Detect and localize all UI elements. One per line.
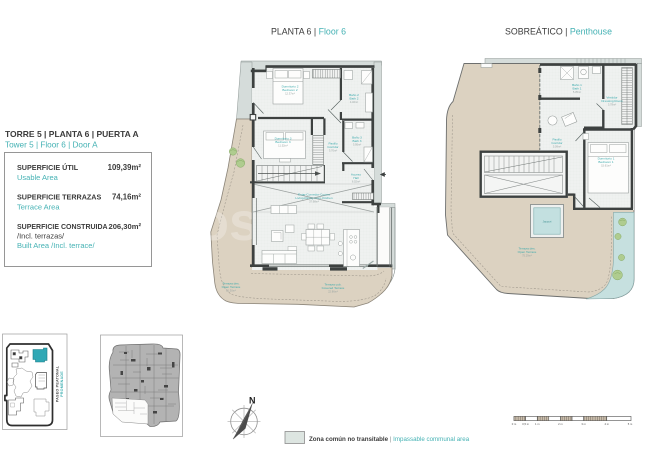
svg-text:/Incl. terrazas/: /Incl. terrazas/ [17,232,65,241]
svg-text:4.32m²: 4.32m² [350,100,358,104]
svg-text:Bedroom 3: Bedroom 3 [275,140,290,144]
svg-text:5.35m²: 5.35m² [573,90,581,94]
svg-text:0,5 m: 0,5 m [522,422,529,426]
svg-text:22.86m²: 22.86m² [328,290,338,294]
svg-text:Bedroom 2: Bedroom 2 [282,88,297,92]
svg-text:SUPERFICIE TERRAZAS: SUPERFICIE TERRAZAS [17,193,101,202]
svg-text:Living-Dining room-Kitchen: Living-Dining room-Kitchen [295,196,332,200]
svg-text:15.61m²: 15.61m² [601,164,611,168]
svg-text:PLANTA 6 | Floor 6: PLANTA 6 | Floor 6 [271,27,346,37]
svg-text:Bedroom 1: Bedroom 1 [598,160,613,164]
svg-text:Bath 3: Bath 3 [353,139,362,143]
svg-text:0 m: 0 m [512,422,517,426]
svg-text:109,39m²: 109,39m² [108,163,142,172]
svg-text:4 m: 4 m [605,422,610,426]
svg-text:1 m: 1 m [535,422,540,426]
svg-text:3.78m²: 3.78m² [608,103,616,107]
svg-text:Zona común no transitable | Im: Zona común no transitable | Impassable c… [309,436,470,443]
svg-text:Bath 2: Bath 2 [350,97,359,101]
svg-text:6.02m²: 6.02m² [352,180,360,184]
svg-text:SOBREÁTICO | Penthouse: SOBREÁTICO | Penthouse [505,27,612,37]
svg-text:Usable Area: Usable Area [17,173,59,182]
svg-text:12.37m²: 12.37m² [285,92,295,96]
svg-text:5 m: 5 m [628,422,633,426]
svg-text:Corridor: Corridor [551,141,562,145]
svg-text:Covered Terrace: Covered Terrace [322,286,345,290]
svg-text:Tower 5 | Floor 6 | Door A: Tower 5 | Floor 6 | Door A [5,141,98,150]
svg-text:TORRE 5 | PLANTA 6 | PUERTA A: TORRE 5 | PLANTA 6 | PUERTA A [5,129,139,139]
svg-text:Open Terrace: Open Terrace [518,250,537,254]
svg-text:11.52m²: 11.52m² [278,144,288,148]
svg-text:51.30m²: 51.30m² [226,289,236,293]
svg-text:75.29m²: 75.29m² [522,254,532,258]
svg-text:Dressing Room: Dressing Room [601,99,623,103]
svg-text:Hall: Hall [353,176,359,180]
svg-text:74,16m²: 74,16m² [112,193,141,202]
svg-text:206,30m²: 206,30m² [108,222,141,231]
svg-text:Terrace Area: Terrace Area [17,203,60,212]
svg-text:SUPERFICIE ÚTIL: SUPERFICIE ÚTIL [17,163,79,172]
svg-text:SUPERFICIE CONSTRUIDA: SUPERFICIE CONSTRUIDA [17,224,108,231]
svg-text:Built Area /Incl. terrace/: Built Area /Incl. terrace/ [17,241,95,250]
svg-text:os: os [196,192,259,252]
svg-text:Bath 1: Bath 1 [573,87,582,91]
svg-text:3.95m²: 3.95m² [353,143,361,147]
svg-text:3.70m²: 3.70m² [329,149,337,153]
svg-text:3 m: 3 m [581,422,586,426]
svg-text:PROMENADE: PROMENADE [60,371,64,397]
svg-text:Jacuzzi: Jacuzzi [543,220,552,224]
svg-text:5.09m²: 5.09m² [553,145,561,149]
svg-text:37.98m²: 37.98m² [309,200,319,204]
svg-text:Open Terrace: Open Terrace [222,285,241,289]
svg-text:PASEO PEATONAL: PASEO PEATONAL [56,365,60,402]
svg-text:Corridor: Corridor [327,145,338,149]
svg-text:2 m: 2 m [558,422,563,426]
